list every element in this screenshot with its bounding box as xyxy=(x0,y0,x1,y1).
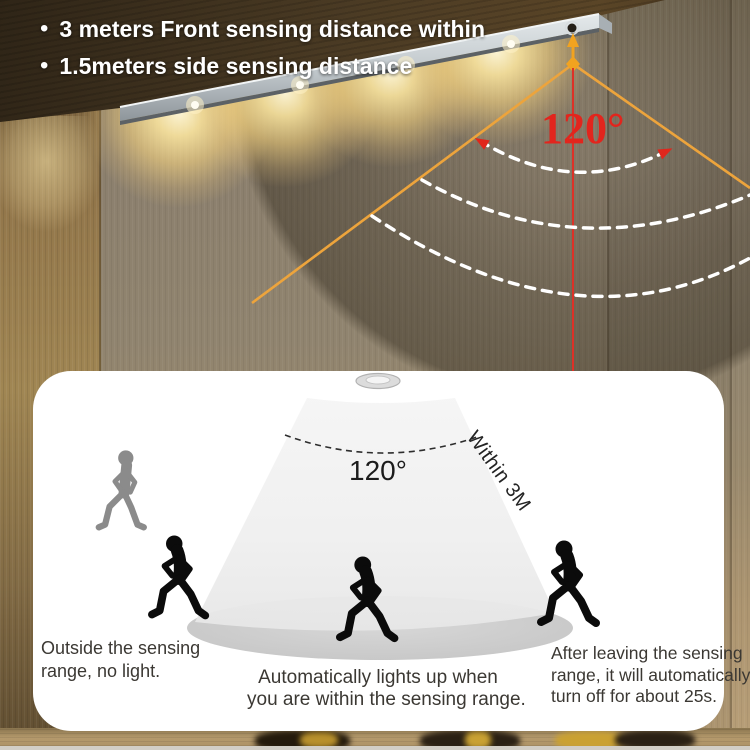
led-dot-icon xyxy=(191,101,199,109)
caption-line: range, no light. xyxy=(41,660,200,683)
walking-person-icon xyxy=(99,450,144,527)
running-person-left-icon xyxy=(152,535,205,615)
sensing-angle-label: 120° xyxy=(541,103,625,154)
running-person-right-icon xyxy=(541,541,596,624)
angle-arrow-left-icon xyxy=(475,138,490,150)
caption-line: you are within the sensing range. xyxy=(247,689,509,711)
product-scene: • 3 meters Front sensing distance within… xyxy=(0,0,750,750)
feature-bullets: • 3 meters Front sensing distance within… xyxy=(40,14,485,88)
caption-auto-off: After leaving the sensing range, it will… xyxy=(551,643,750,708)
feature-text: 3 meters Front sensing distance within xyxy=(59,14,485,44)
feature-bullet-2: • 1.5meters side sensing distance xyxy=(40,51,485,81)
caption-line: range, it will automatically xyxy=(551,665,750,687)
caption-line: Outside the sensing xyxy=(41,637,200,660)
bullet-icon: • xyxy=(40,14,48,44)
led-dot-icon xyxy=(507,40,515,48)
feature-text: 1.5meters side sensing distance xyxy=(59,51,412,81)
caption-lights-up: Automatically lights up when you are wit… xyxy=(247,667,509,711)
caption-line: Automatically lights up when xyxy=(247,667,509,689)
caption-line: After leaving the sensing xyxy=(551,643,750,665)
caption-line: turn off for about 25s. xyxy=(551,686,750,708)
feature-bullet-1: • 3 meters Front sensing distance within xyxy=(40,14,485,44)
caption-outside-range: Outside the sensing range, no light. xyxy=(41,637,200,683)
sensing-wave-arcs xyxy=(372,141,750,296)
floor-edge-strip xyxy=(0,746,750,750)
sensing-cone-lines xyxy=(252,64,750,303)
recessed-light-icon xyxy=(356,374,400,389)
angle-arrow-right-icon xyxy=(657,148,672,159)
bullet-icon: • xyxy=(40,51,48,81)
cone-angle-label: 120° xyxy=(303,455,453,487)
sensing-diagram-panel: 120° Within 3M Outside the sensing range… xyxy=(33,371,724,731)
